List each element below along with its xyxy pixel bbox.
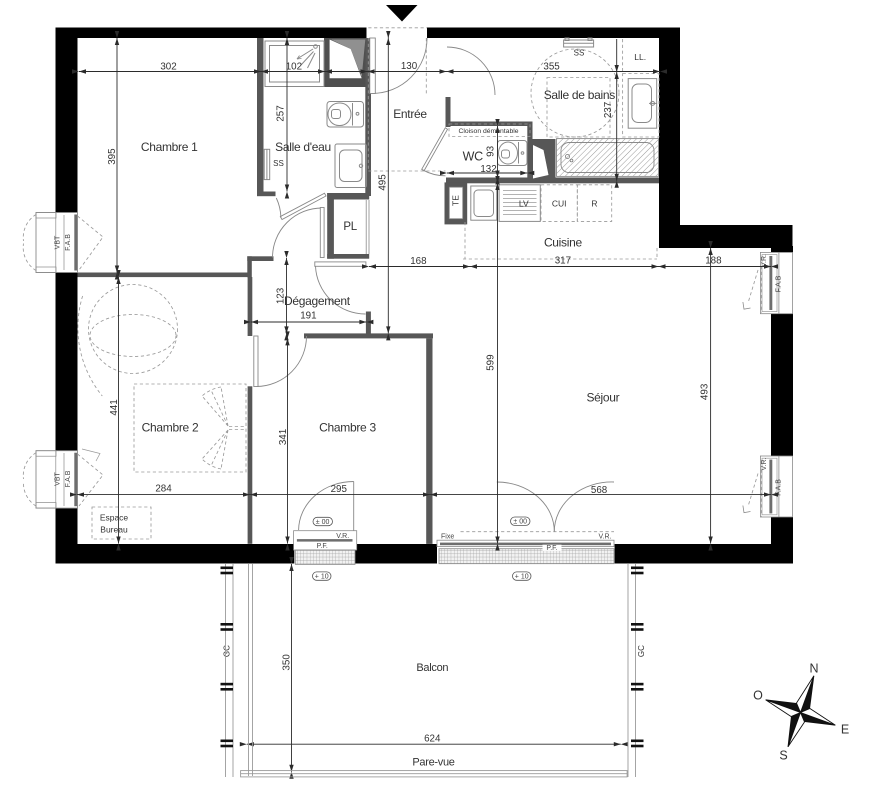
svg-text:568: 568 xyxy=(591,485,608,496)
svg-text:341: 341 xyxy=(278,429,289,445)
svg-text:237: 237 xyxy=(603,102,614,118)
svg-text:VBT: VBT xyxy=(55,235,62,249)
svg-text:N: N xyxy=(809,662,818,676)
svg-text:Salle de bains: Salle de bains xyxy=(544,88,615,102)
svg-text:493: 493 xyxy=(700,383,711,400)
svg-text:WC: WC xyxy=(463,150,483,164)
svg-text:441: 441 xyxy=(109,399,120,415)
svg-text:Bureau: Bureau xyxy=(100,525,128,535)
svg-text:F.A.B: F.A.B xyxy=(776,275,783,292)
svg-text:R: R xyxy=(591,199,597,209)
svg-text:V.R.: V.R. xyxy=(761,457,768,470)
svg-text:P.F.: P.F. xyxy=(317,543,328,550)
svg-text:132: 132 xyxy=(480,164,496,175)
svg-text:V.R.: V.R. xyxy=(336,533,349,540)
svg-text:Cuisine: Cuisine xyxy=(544,236,583,250)
svg-text:257: 257 xyxy=(276,105,287,121)
svg-text:295: 295 xyxy=(331,484,348,495)
svg-text:P.F.: P.F. xyxy=(546,545,557,552)
svg-text:624: 624 xyxy=(424,734,441,745)
svg-text:93: 93 xyxy=(486,145,497,156)
svg-text:E: E xyxy=(841,723,849,737)
svg-text:168: 168 xyxy=(410,256,427,267)
svg-text:LV: LV xyxy=(519,199,529,209)
svg-text:Pare-vue: Pare-vue xyxy=(412,757,454,769)
svg-text:284: 284 xyxy=(155,484,172,495)
svg-text:LL.: LL. xyxy=(634,52,646,62)
svg-text:317: 317 xyxy=(555,256,571,267)
svg-text:F.A.B: F.A.B xyxy=(65,234,72,251)
svg-text:CUI: CUI xyxy=(552,199,567,209)
svg-text:Salle d'eau: Salle d'eau xyxy=(275,140,331,154)
svg-text:PL: PL xyxy=(343,221,357,233)
svg-text:F.A.B: F.A.B xyxy=(65,470,72,487)
svg-text:SS: SS xyxy=(574,49,585,58)
svg-text:Chambre 3: Chambre 3 xyxy=(319,421,376,435)
svg-text:130: 130 xyxy=(401,61,418,72)
svg-text:Chambre 2: Chambre 2 xyxy=(142,421,199,435)
svg-text:302: 302 xyxy=(160,62,176,73)
svg-text:GC: GC xyxy=(637,645,646,657)
svg-text:± 00: ± 00 xyxy=(316,519,330,526)
svg-text:191: 191 xyxy=(300,311,316,322)
svg-text:102: 102 xyxy=(286,62,302,73)
svg-text:GC: GC xyxy=(223,645,232,657)
svg-text:+ 10: + 10 xyxy=(515,574,529,581)
svg-text:Séjour: Séjour xyxy=(586,391,619,405)
svg-text:Entrée: Entrée xyxy=(393,107,427,121)
svg-text:495: 495 xyxy=(377,174,388,191)
svg-text:Dégagement: Dégagement xyxy=(284,294,351,308)
svg-text:Chambre 1: Chambre 1 xyxy=(141,140,198,154)
svg-text:S: S xyxy=(779,749,787,763)
svg-text:+ 10: + 10 xyxy=(315,574,329,581)
svg-text:Espace: Espace xyxy=(100,513,129,523)
svg-text:TE: TE xyxy=(451,195,461,206)
svg-text:350: 350 xyxy=(281,654,292,671)
svg-text:SS: SS xyxy=(273,159,284,168)
svg-text:355: 355 xyxy=(543,62,560,73)
svg-text:± 00: ± 00 xyxy=(513,519,527,526)
svg-text:O: O xyxy=(753,689,763,703)
svg-text:188: 188 xyxy=(705,256,722,267)
svg-text:Cloison démontable: Cloison démontable xyxy=(458,128,518,135)
svg-text:VBT: VBT xyxy=(55,471,62,485)
svg-text:V.R.: V.R. xyxy=(599,534,612,541)
svg-text:395: 395 xyxy=(107,148,118,165)
svg-text:Balcon: Balcon xyxy=(416,662,448,674)
svg-text:599: 599 xyxy=(486,354,497,370)
svg-text:Fixe: Fixe xyxy=(441,534,454,541)
